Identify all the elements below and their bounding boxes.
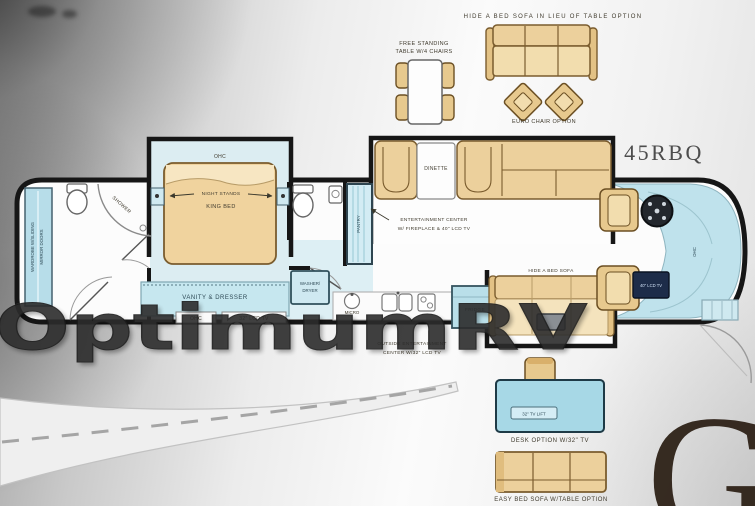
hide-a-bed-option-label: HIDE A BED SOFA IN LIEU OF TABLE OPTION <box>464 14 643 20</box>
wardrobe-label-2: MIRROR DOORS <box>39 229 44 264</box>
front-tv-label: 40" LCD TV <box>640 283 662 288</box>
entertainment-note-2: W/ FIREPLACE & 40" LCD TV <box>398 226 471 232</box>
washer-dryer-label-1: WASHER/ <box>300 281 321 286</box>
bedroom-ohc-label: OHC <box>214 154 226 160</box>
dealer-g-logo: G <box>646 388 755 506</box>
background-smudge <box>28 6 56 17</box>
easy-bed-option-caption: EASY BED SOFA W/TABLE OPTION <box>494 497 607 503</box>
dining-chair <box>396 95 409 120</box>
dinette-bench <box>375 141 417 199</box>
option-desk: 32" TV LIFT DESK OPTION W/32" TV <box>496 358 604 444</box>
hide-a-bed-sofa-label: HIDE A BED SOFA <box>528 268 574 274</box>
road-graphic <box>0 382 458 486</box>
table-option-label-2: TABLE W/4 CHAIRS <box>395 49 452 55</box>
sofa-arm <box>496 452 504 492</box>
toilet <box>293 193 313 217</box>
wardrobe-label-1: WARDROBE W/SLIDING <box>30 222 35 272</box>
dinette-label: DINETTE <box>424 166 448 172</box>
table-option-label-1: FREE STANDING <box>399 41 448 47</box>
king-bed-label: KING BED <box>206 204 235 210</box>
floorplan-page: HIDE A BED SOFA IN LIEU OF TABLE OPTION … <box>0 0 755 506</box>
dining-chair <box>396 63 409 88</box>
desk-option-caption: DESK OPTION W/32" TV <box>511 438 589 444</box>
background-smudge <box>62 10 77 18</box>
dinette-area: DINETTE <box>375 141 611 199</box>
sofa-seat <box>493 46 590 76</box>
dash-ohc-label: OHC <box>692 247 697 257</box>
euro-chair-option-label: EURO CHAIR OPTION <box>512 119 576 125</box>
night-stands-label: NIGHT STANDS <box>202 191 241 197</box>
entry-steps <box>702 300 738 320</box>
easy-bed-sofa <box>496 452 606 492</box>
pantry: PANTRY <box>347 184 372 264</box>
desk-tv-lift-label: 32" TV LIFT <box>522 412 546 417</box>
lav-sink <box>329 186 342 203</box>
model-number: 45RBQ <box>624 140 704 165</box>
desk <box>496 380 604 432</box>
option-hide-a-bed-sofa: HIDE A BED SOFA IN LIEU OF TABLE OPTION <box>464 14 643 80</box>
dining-chair <box>441 95 454 120</box>
toilet <box>67 190 87 214</box>
dining-chair <box>441 63 454 88</box>
toilet-tank <box>293 185 313 193</box>
entertainment-note-1: ENTERTAINMENT CENTER <box>400 217 468 223</box>
option-easy-bed-sofa: EASY BED SOFA W/TABLE OPTION <box>494 452 607 503</box>
pantry-label: PANTRY <box>356 215 361 232</box>
optimumrv-watermark: OptimumRV <box>0 297 587 359</box>
option-free-standing-table: FREE STANDING TABLE W/4 CHAIRS <box>395 41 454 124</box>
option-euro-chairs: EURO CHAIR OPTION <box>503 82 584 125</box>
sofa-back <box>493 25 590 46</box>
floorplan-svg: HIDE A BED SOFA IN LIEU OF TABLE OPTION … <box>0 0 755 506</box>
dining-table <box>408 60 442 124</box>
